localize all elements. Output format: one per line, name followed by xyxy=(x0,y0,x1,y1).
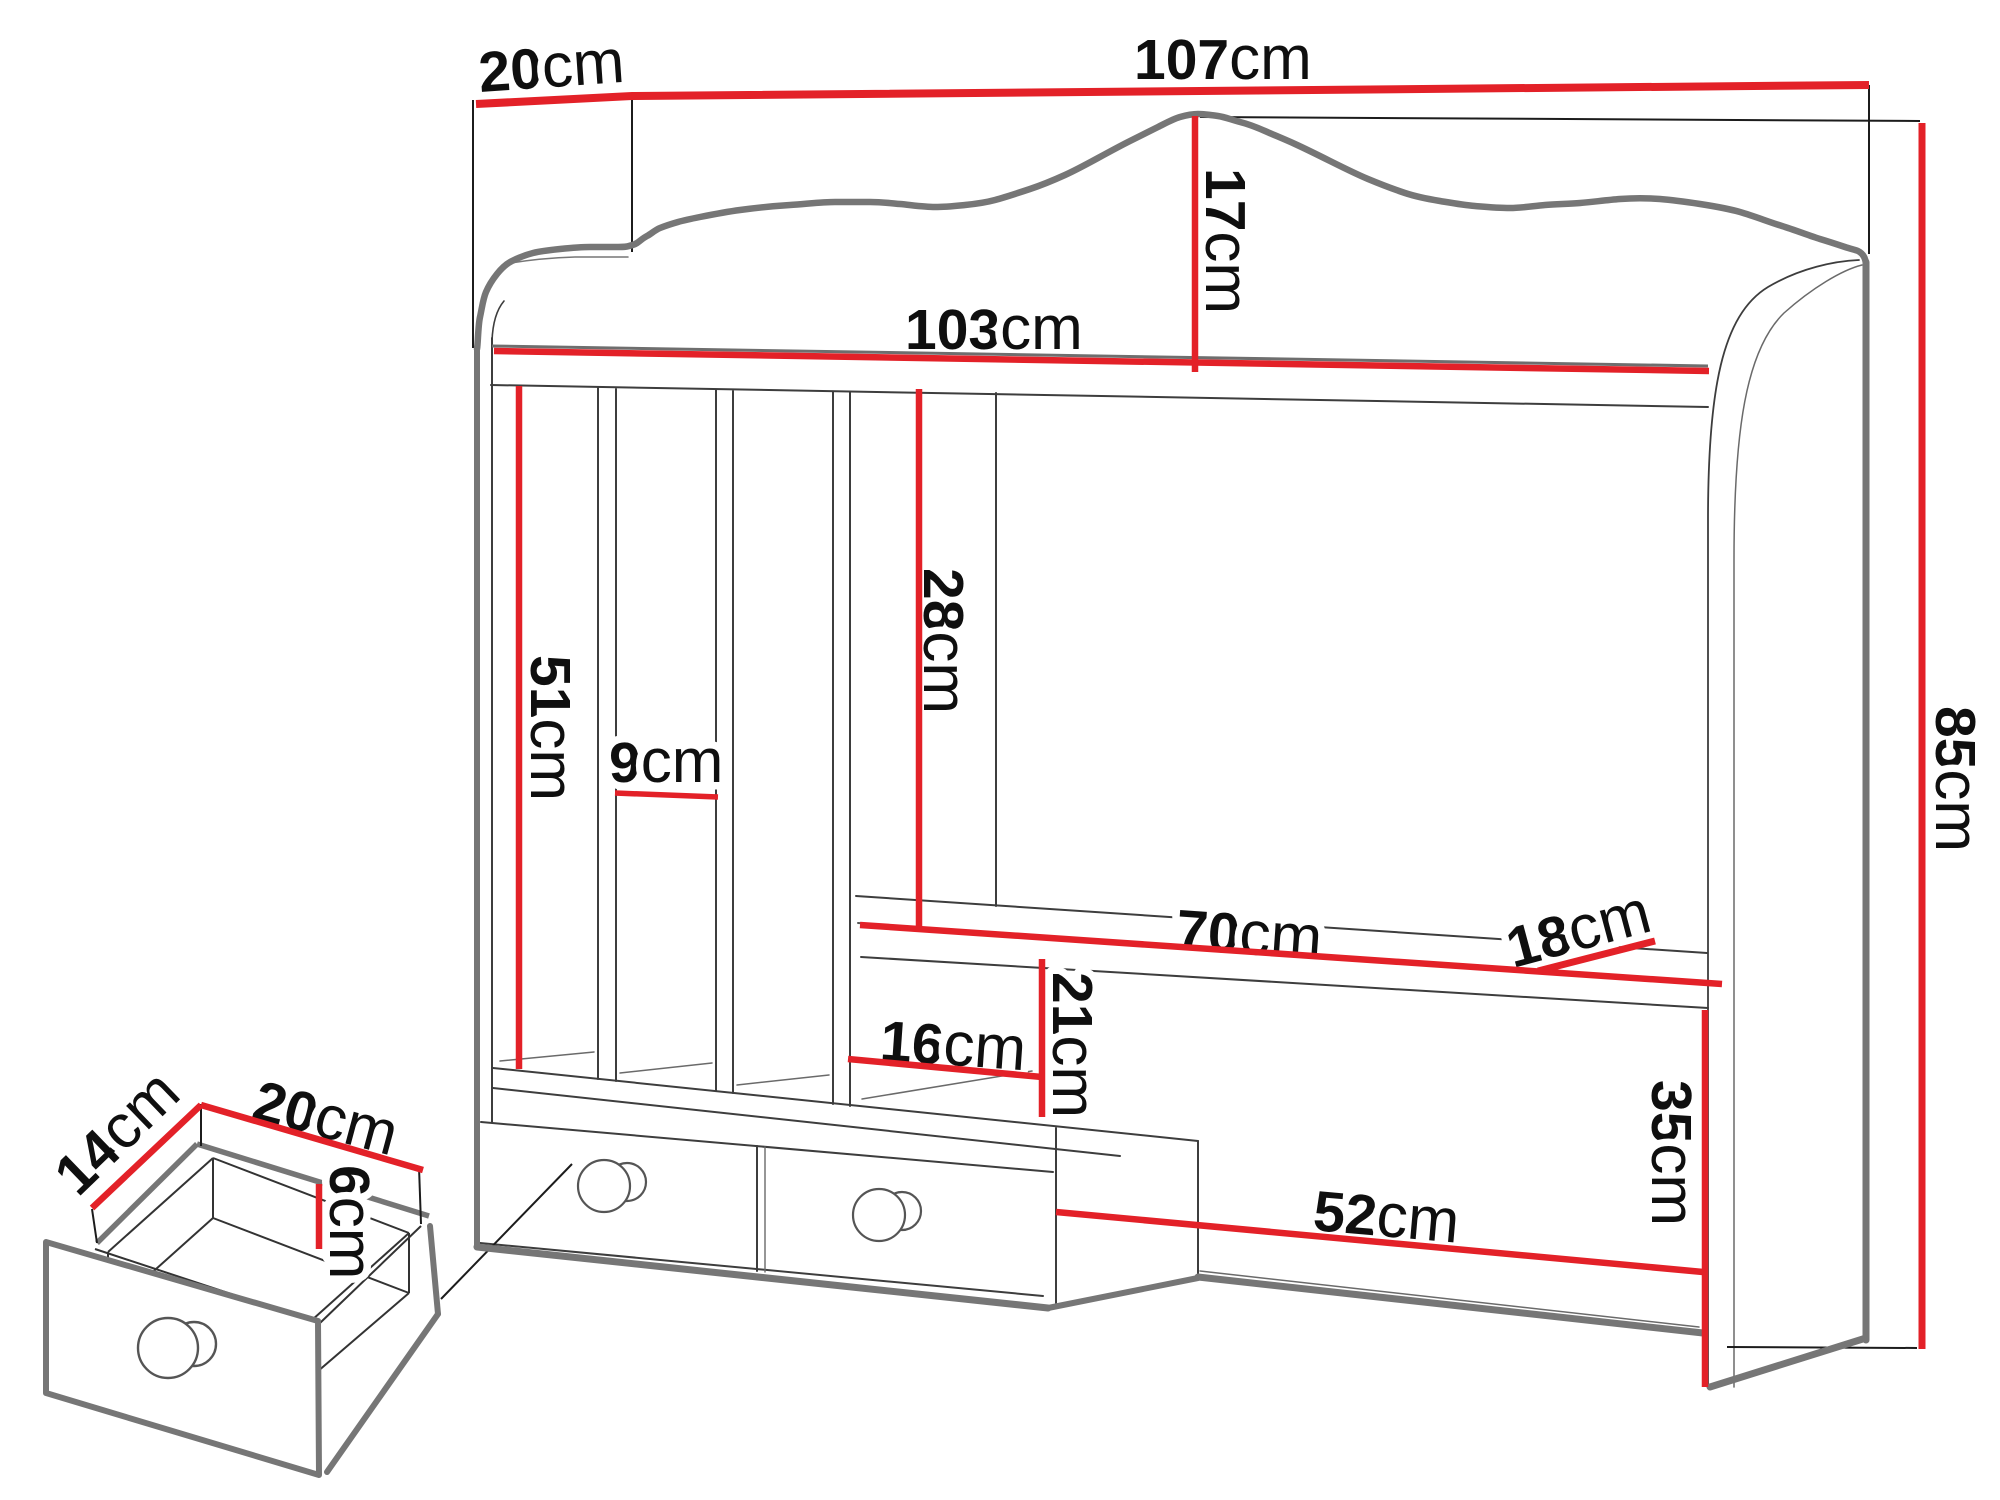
svg-text:17cm: 17cm xyxy=(1192,168,1261,314)
svg-text:107cm: 107cm xyxy=(1134,24,1312,93)
svg-text:21cm: 21cm xyxy=(1039,972,1108,1118)
svg-text:51cm: 51cm xyxy=(517,655,586,801)
svg-text:70cm: 70cm xyxy=(1174,894,1325,973)
svg-text:35cm: 35cm xyxy=(1638,1080,1707,1226)
svg-text:85cm: 85cm xyxy=(1922,706,1991,852)
svg-text:6cm: 6cm xyxy=(316,1165,385,1279)
svg-text:9cm: 9cm xyxy=(609,727,723,796)
